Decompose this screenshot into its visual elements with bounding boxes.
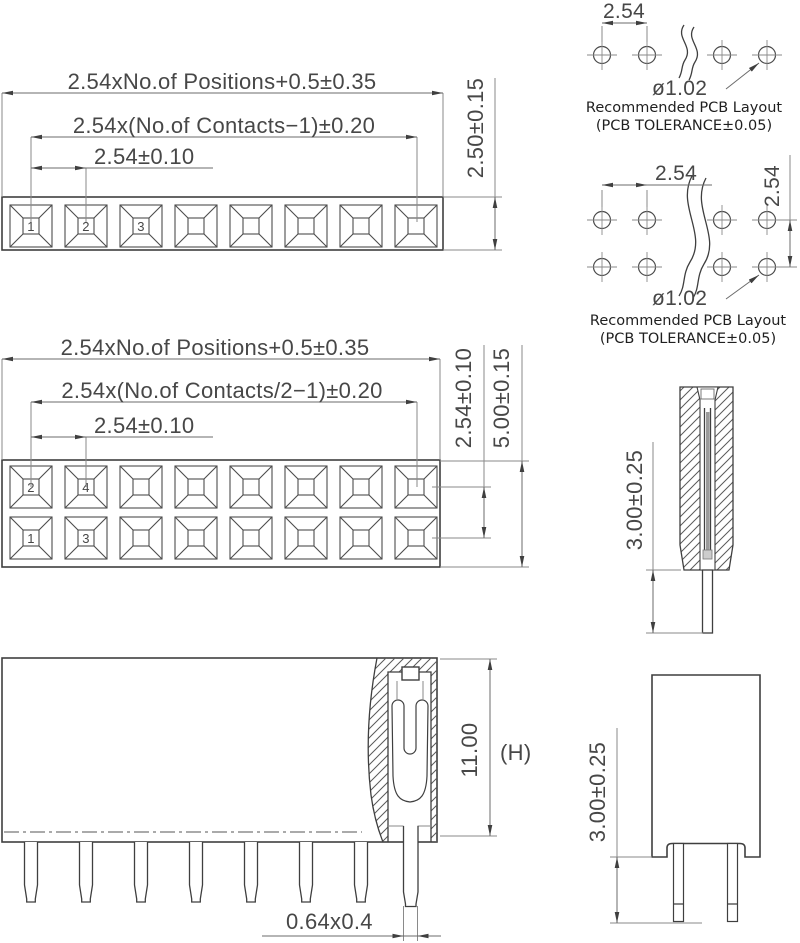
technical-drawing-page: 1 2 3 2.54xNo.of Positions+0.5±0.35 2.54… <box>0 0 800 943</box>
pcb-tolerance-caption: (PCB TOLERANCE±0.05) <box>600 331 776 347</box>
pcb-layout-single-row: 2.54 ø1.02 Recommended PCB Layout (PCB T… <box>586 0 783 134</box>
dim-contacts-span: 2.54x(No.of Contacts/2−1)±0.20 <box>61 378 382 403</box>
dim-height-symbol: (H) <box>500 740 531 765</box>
pin-rear <box>728 844 738 922</box>
pin-front <box>674 844 684 922</box>
dim-hole-pitch: 2.54 <box>655 162 697 185</box>
dim-pin-size: 0.64x0.4 <box>286 909 373 934</box>
dim-contacts-span: 2.54x(No.of Contacts−1)±0.20 <box>73 113 375 138</box>
dim-row-pitch: 2.54±0.10 <box>451 348 476 448</box>
dim-pitch: 2.54±0.10 <box>94 413 194 438</box>
contact-section-view: 3.00±0.25 <box>622 387 733 633</box>
contact-beam <box>706 412 710 550</box>
contact-tail-pin <box>404 826 419 907</box>
pcb-layout-dual-row: 2.54 2.54 ø1.02 Recommended PCB Layout (… <box>587 155 797 347</box>
pin-number-3: 3 <box>137 219 145 234</box>
pin-number-3: 3 <box>82 531 90 546</box>
housing-profile <box>652 675 760 857</box>
pin-entry-hole <box>402 667 419 680</box>
dim-body-depth: 5.00±0.15 <box>489 348 514 448</box>
dual-row-top-view: 2 4 1 3 2.54xNo.of Positions+0.5±0.35 2.… <box>2 335 529 567</box>
dim-overall-width: 2.54xNo.of Positions+0.5±0.35 <box>68 69 377 94</box>
dim-overall-width: 2.54xNo.of Positions+0.5±0.35 <box>61 335 370 360</box>
side-view: 3.00±0.25 <box>585 675 760 923</box>
dim-body-depth: 2.50±0.15 <box>463 78 488 178</box>
connector-drawing-svg: 1 2 3 2.54xNo.of Positions+0.5±0.35 2.54… <box>0 0 800 943</box>
dim-hole-pitch: 2.54 <box>603 0 645 23</box>
dim-row-pitch: 2.54 <box>761 165 784 207</box>
break-line <box>679 25 687 78</box>
break-line <box>679 176 696 296</box>
pcb-layout-caption: Recommended PCB Layout <box>586 100 783 116</box>
dim-hole-diameter: ø1.02 <box>652 77 707 100</box>
pcb-tolerance-caption: (PCB TOLERANCE±0.05) <box>596 118 772 134</box>
dim-tail-length: 3.00±0.25 <box>622 450 647 550</box>
pcb-layout-caption: Recommended PCB Layout <box>590 313 787 329</box>
dim-tail-length: 3.00±0.25 <box>585 742 610 842</box>
dim-height: 11.00 <box>457 723 482 778</box>
spring-contact <box>392 700 428 802</box>
single-row-top-view: 1 2 3 2.54xNo.of Positions+0.5±0.35 2.54… <box>2 69 502 250</box>
dim-pitch: 2.54±0.10 <box>94 144 194 169</box>
dim-hole-diameter: ø1.02 <box>652 287 707 310</box>
solder-tail <box>703 570 713 633</box>
pin-number-1: 1 <box>27 531 35 546</box>
front-view: 11.00 (H) 0.64x0.4 <box>2 658 531 941</box>
